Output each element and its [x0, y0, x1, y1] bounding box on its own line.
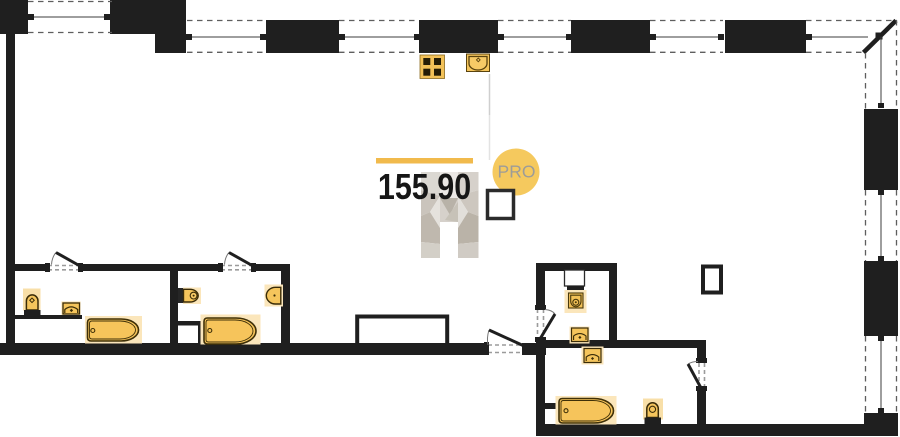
svg-text:PRO: PRO	[498, 162, 536, 182]
svg-text:155.90: 155.90	[378, 168, 471, 208]
